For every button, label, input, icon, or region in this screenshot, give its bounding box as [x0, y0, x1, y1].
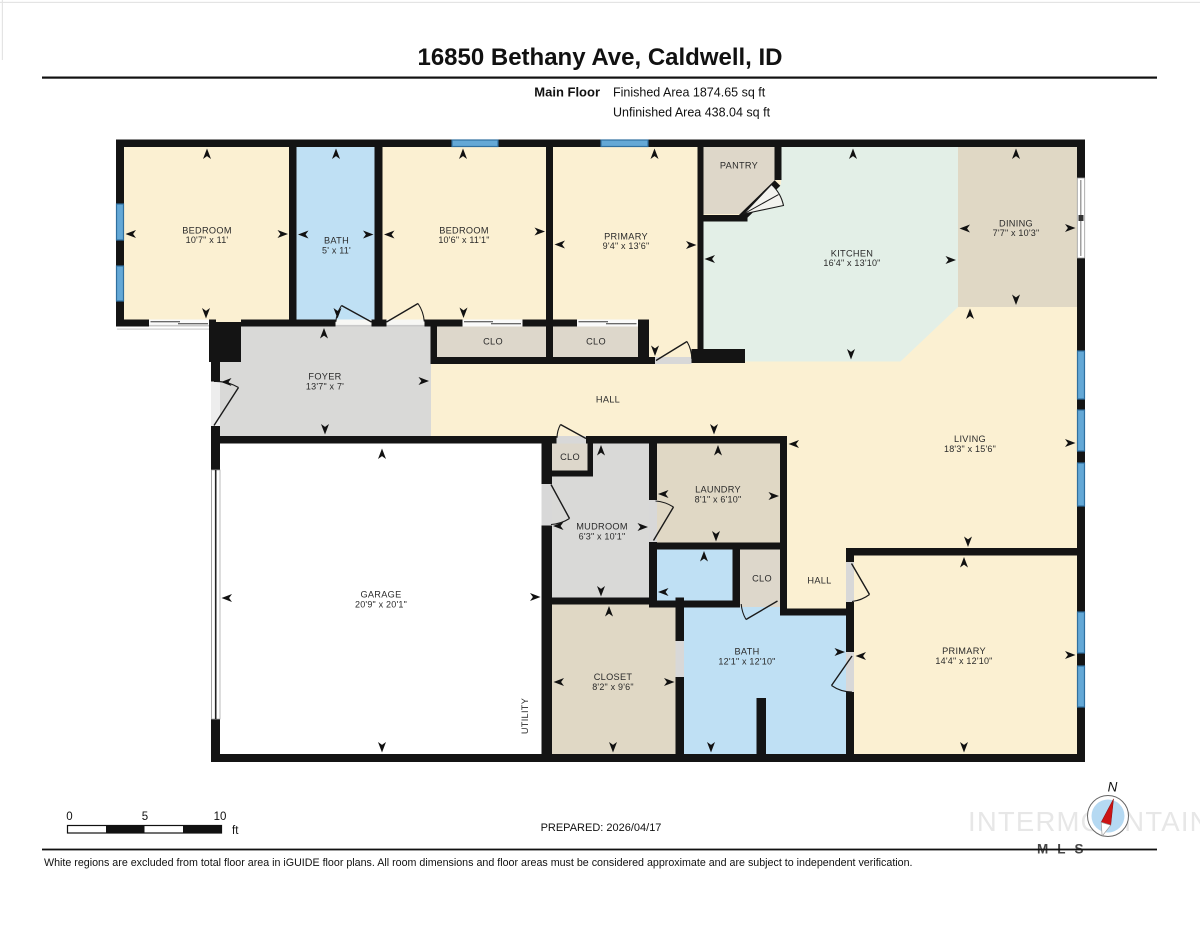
svg-text:FOYER: FOYER — [308, 372, 341, 382]
svg-text:16'4" x 13'10": 16'4" x 13'10" — [823, 258, 880, 268]
svg-text:10: 10 — [214, 811, 227, 823]
svg-text:White regions are excluded fro: White regions are excluded from total fl… — [44, 857, 913, 869]
svg-text:ft: ft — [232, 825, 239, 837]
svg-text:MUDROOM: MUDROOM — [576, 522, 628, 532]
svg-text:UTILITY: UTILITY — [520, 698, 530, 734]
svg-text:8'1" x 6'10": 8'1" x 6'10" — [695, 495, 742, 505]
svg-text:BEDROOM: BEDROOM — [439, 226, 489, 236]
svg-text:PANTRY: PANTRY — [720, 161, 758, 171]
svg-text:CLO: CLO — [586, 337, 606, 347]
svg-text:CLO: CLO — [752, 574, 772, 584]
svg-text:BATH: BATH — [734, 647, 759, 657]
svg-text:16850 Bethany Ave, Caldwell, I: 16850 Bethany Ave, Caldwell, ID — [417, 44, 782, 71]
svg-text:BEDROOM: BEDROOM — [182, 226, 232, 236]
svg-text:8'2" x 9'6": 8'2" x 9'6" — [592, 682, 634, 692]
svg-text:Unfinished Area 438.04 sq ft: Unfinished Area 438.04 sq ft — [613, 106, 771, 120]
svg-text:N: N — [1108, 780, 1118, 795]
svg-text:9'4" x 13'6": 9'4" x 13'6" — [603, 241, 650, 251]
svg-text:0: 0 — [66, 811, 72, 823]
svg-text:5: 5 — [142, 811, 148, 823]
svg-text:20'9" x 20'1": 20'9" x 20'1" — [355, 600, 407, 610]
svg-text:GARAGE: GARAGE — [360, 590, 401, 600]
svg-text:5' x 11': 5' x 11' — [322, 246, 351, 256]
svg-text:18'3" x 15'6": 18'3" x 15'6" — [944, 444, 996, 454]
svg-text:PRIMARY: PRIMARY — [942, 646, 986, 656]
svg-text:Main Floor: Main Floor — [534, 85, 600, 100]
svg-text:BATH: BATH — [324, 236, 349, 246]
svg-text:14'4" x 12'10": 14'4" x 12'10" — [935, 656, 992, 666]
svg-text:CLOSET: CLOSET — [594, 672, 633, 682]
svg-text:KITCHEN: KITCHEN — [831, 249, 873, 259]
svg-text:CLO: CLO — [560, 452, 580, 462]
svg-text:CLO: CLO — [483, 337, 503, 347]
svg-text:12'1" x 12'10": 12'1" x 12'10" — [718, 657, 775, 667]
svg-text:Finished Area 1874.65 sq ft: Finished Area 1874.65 sq ft — [613, 86, 766, 100]
svg-text:DINING: DINING — [999, 219, 1033, 229]
svg-text:10'6" x 11'1": 10'6" x 11'1" — [438, 235, 489, 245]
svg-text:INTERMOUNTAIN: INTERMOUNTAIN — [968, 806, 1200, 837]
svg-text:PRIMARY: PRIMARY — [604, 232, 648, 242]
svg-text:6'3" x 10'1": 6'3" x 10'1" — [579, 532, 626, 542]
svg-text:HALL: HALL — [807, 576, 831, 586]
svg-text:13'7" x 7': 13'7" x 7' — [306, 382, 344, 392]
svg-text:LIVING: LIVING — [954, 434, 986, 444]
svg-text:HALL: HALL — [596, 395, 620, 405]
svg-text:LAUNDRY: LAUNDRY — [695, 485, 741, 495]
svg-text:7'7" x 10'3": 7'7" x 10'3" — [993, 228, 1040, 238]
svg-text:PREPARED: 2026/04/17: PREPARED: 2026/04/17 — [541, 822, 662, 834]
svg-text:10'7" x 11': 10'7" x 11' — [186, 235, 229, 245]
